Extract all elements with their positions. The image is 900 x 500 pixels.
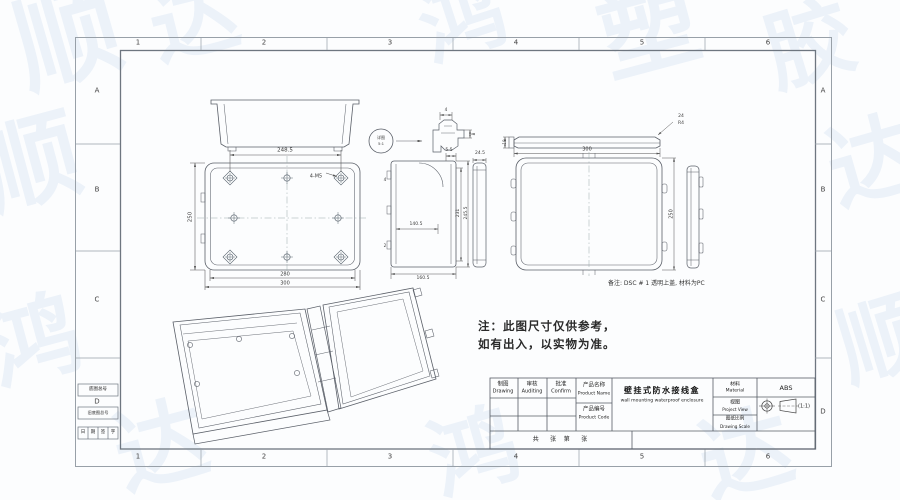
dim-cover-height: 250 [670, 209, 675, 219]
dim-side-top: 5.5 [445, 149, 452, 154]
dim-strip-top: 24.5 [475, 152, 485, 157]
zone-col-label: 1 [136, 40, 140, 47]
dim-cover-leader-b: R4 [678, 122, 684, 127]
scale-value: (1:1) [798, 405, 810, 410]
product-code-label-cn: 产品编号 [583, 407, 605, 413]
zone-col-label: 6 [766, 454, 770, 461]
dim-side-right-outer: 245.5 [464, 207, 469, 220]
sheet-count-row: 共 张 第 张 [533, 437, 588, 443]
zone-col-label: 5 [640, 40, 644, 47]
dim-cover-leader-a: 24 [678, 115, 684, 120]
drawing-sheet: 顺 达 鸿 塑 胶 顺 达 鸿 顺 达 鸿 达 [0, 0, 900, 500]
note-line2: 如有出入，以实物为准。 [478, 338, 616, 351]
view-side-strip [473, 158, 486, 267]
zone-row-label: B [821, 187, 826, 194]
dim-side-small-a: 4 [384, 178, 387, 182]
drawing-label-cn: 制图 [497, 382, 508, 388]
confirm-label-cn: 批准 [555, 382, 566, 388]
material-label-en: Material [726, 390, 745, 395]
view-label-cn: 视图 [730, 401, 740, 406]
product-name-value-en: wall mounting waterproof enclosure [621, 400, 704, 405]
dim-detail-top: 4 [445, 108, 448, 112]
dim-side-small-b: 2 [384, 244, 387, 248]
dim-side-bottom: 160.5 [417, 277, 430, 282]
zone-row-label: A [821, 88, 826, 95]
sign-cell: 日 [81, 431, 86, 436]
view-cover-front [511, 152, 676, 276]
dim-main-bottom-inner: 280 [280, 273, 290, 278]
zone-col-label: 2 [262, 454, 266, 461]
scale-label-cn: 图纸比例 [726, 418, 744, 423]
dim-side-right-inner: 231 [457, 209, 462, 218]
zone-col-label: 1 [136, 454, 140, 461]
product-name-value-cn: 壁挂式防水接线盒 [624, 387, 700, 395]
view-label-en: Project View [722, 408, 748, 412]
auditing-label-cn: 审核 [526, 382, 537, 388]
product-code-label-en: Product Code [579, 417, 610, 422]
sheet-frame [75, 37, 832, 467]
zone-col-label: 6 [766, 40, 770, 47]
detail-callout-label: 详图 [377, 136, 385, 140]
dim-cover-lip: 18 [503, 139, 507, 144]
auditing-label-en: Auditing [522, 390, 543, 395]
dim-cover-width: 300 [582, 148, 592, 153]
drawing-label-en: Drawing [493, 390, 514, 395]
scale-label-en: Drawing Scale [720, 425, 750, 429]
view-main-bottom [190, 150, 368, 290]
sign-cell: 期 [91, 431, 96, 436]
base-drawing-no-label: 底图总号 [89, 388, 107, 393]
view-isometric [173, 288, 439, 444]
sign-cell: 签 [101, 431, 106, 436]
zone-row-label: D [820, 409, 825, 416]
zone-row-label: D [94, 399, 99, 406]
zone-row-label: C [95, 297, 100, 304]
dim-side-mid: 140.5 [410, 223, 423, 228]
zone-row-label: B [95, 187, 100, 194]
dim-main-left: 250 [188, 212, 194, 223]
material-label-cn: 材料 [730, 383, 740, 388]
view-side-elevation [211, 100, 359, 151]
note-line1: 注：此图尺寸仅供参考， [478, 320, 616, 333]
zone-row-label: A [95, 88, 100, 95]
zone-row-label: C [821, 297, 826, 304]
zone-col-label: 5 [640, 454, 644, 461]
sign-cell: 字 [111, 431, 116, 436]
projection-symbol [759, 399, 798, 414]
drawing-linework [0, 0, 900, 500]
detail-callout-scale: 5:1 [378, 142, 384, 146]
remark-text: 备注: DSC # 1 透明上盖, 材料为PC [608, 281, 705, 288]
view-cover-side [687, 166, 703, 268]
zone-col-label: 3 [388, 454, 392, 461]
material-value: ABS [780, 385, 793, 392]
detail-callout [369, 129, 422, 153]
dim-main-holes: 4-M5 [310, 175, 322, 180]
view-detail-section [433, 112, 472, 152]
dim-main-top: 248.5 [277, 148, 293, 154]
dim-main-bottom-outer: 300 [280, 282, 290, 287]
dim-detail-right: 8 [472, 133, 476, 136]
confirm-label-en: Confirm [551, 390, 571, 395]
product-name-label-en: Product Name [578, 393, 610, 398]
zone-col-label: 4 [514, 40, 518, 47]
zone-col-label: 4 [514, 454, 518, 461]
zone-col-label: 2 [262, 40, 266, 47]
zone-col-label: 3 [388, 40, 392, 47]
old-base-drawing-no-label: 旧底图总号 [88, 411, 109, 415]
product-name-label-cn: 产品名称 [583, 383, 605, 389]
